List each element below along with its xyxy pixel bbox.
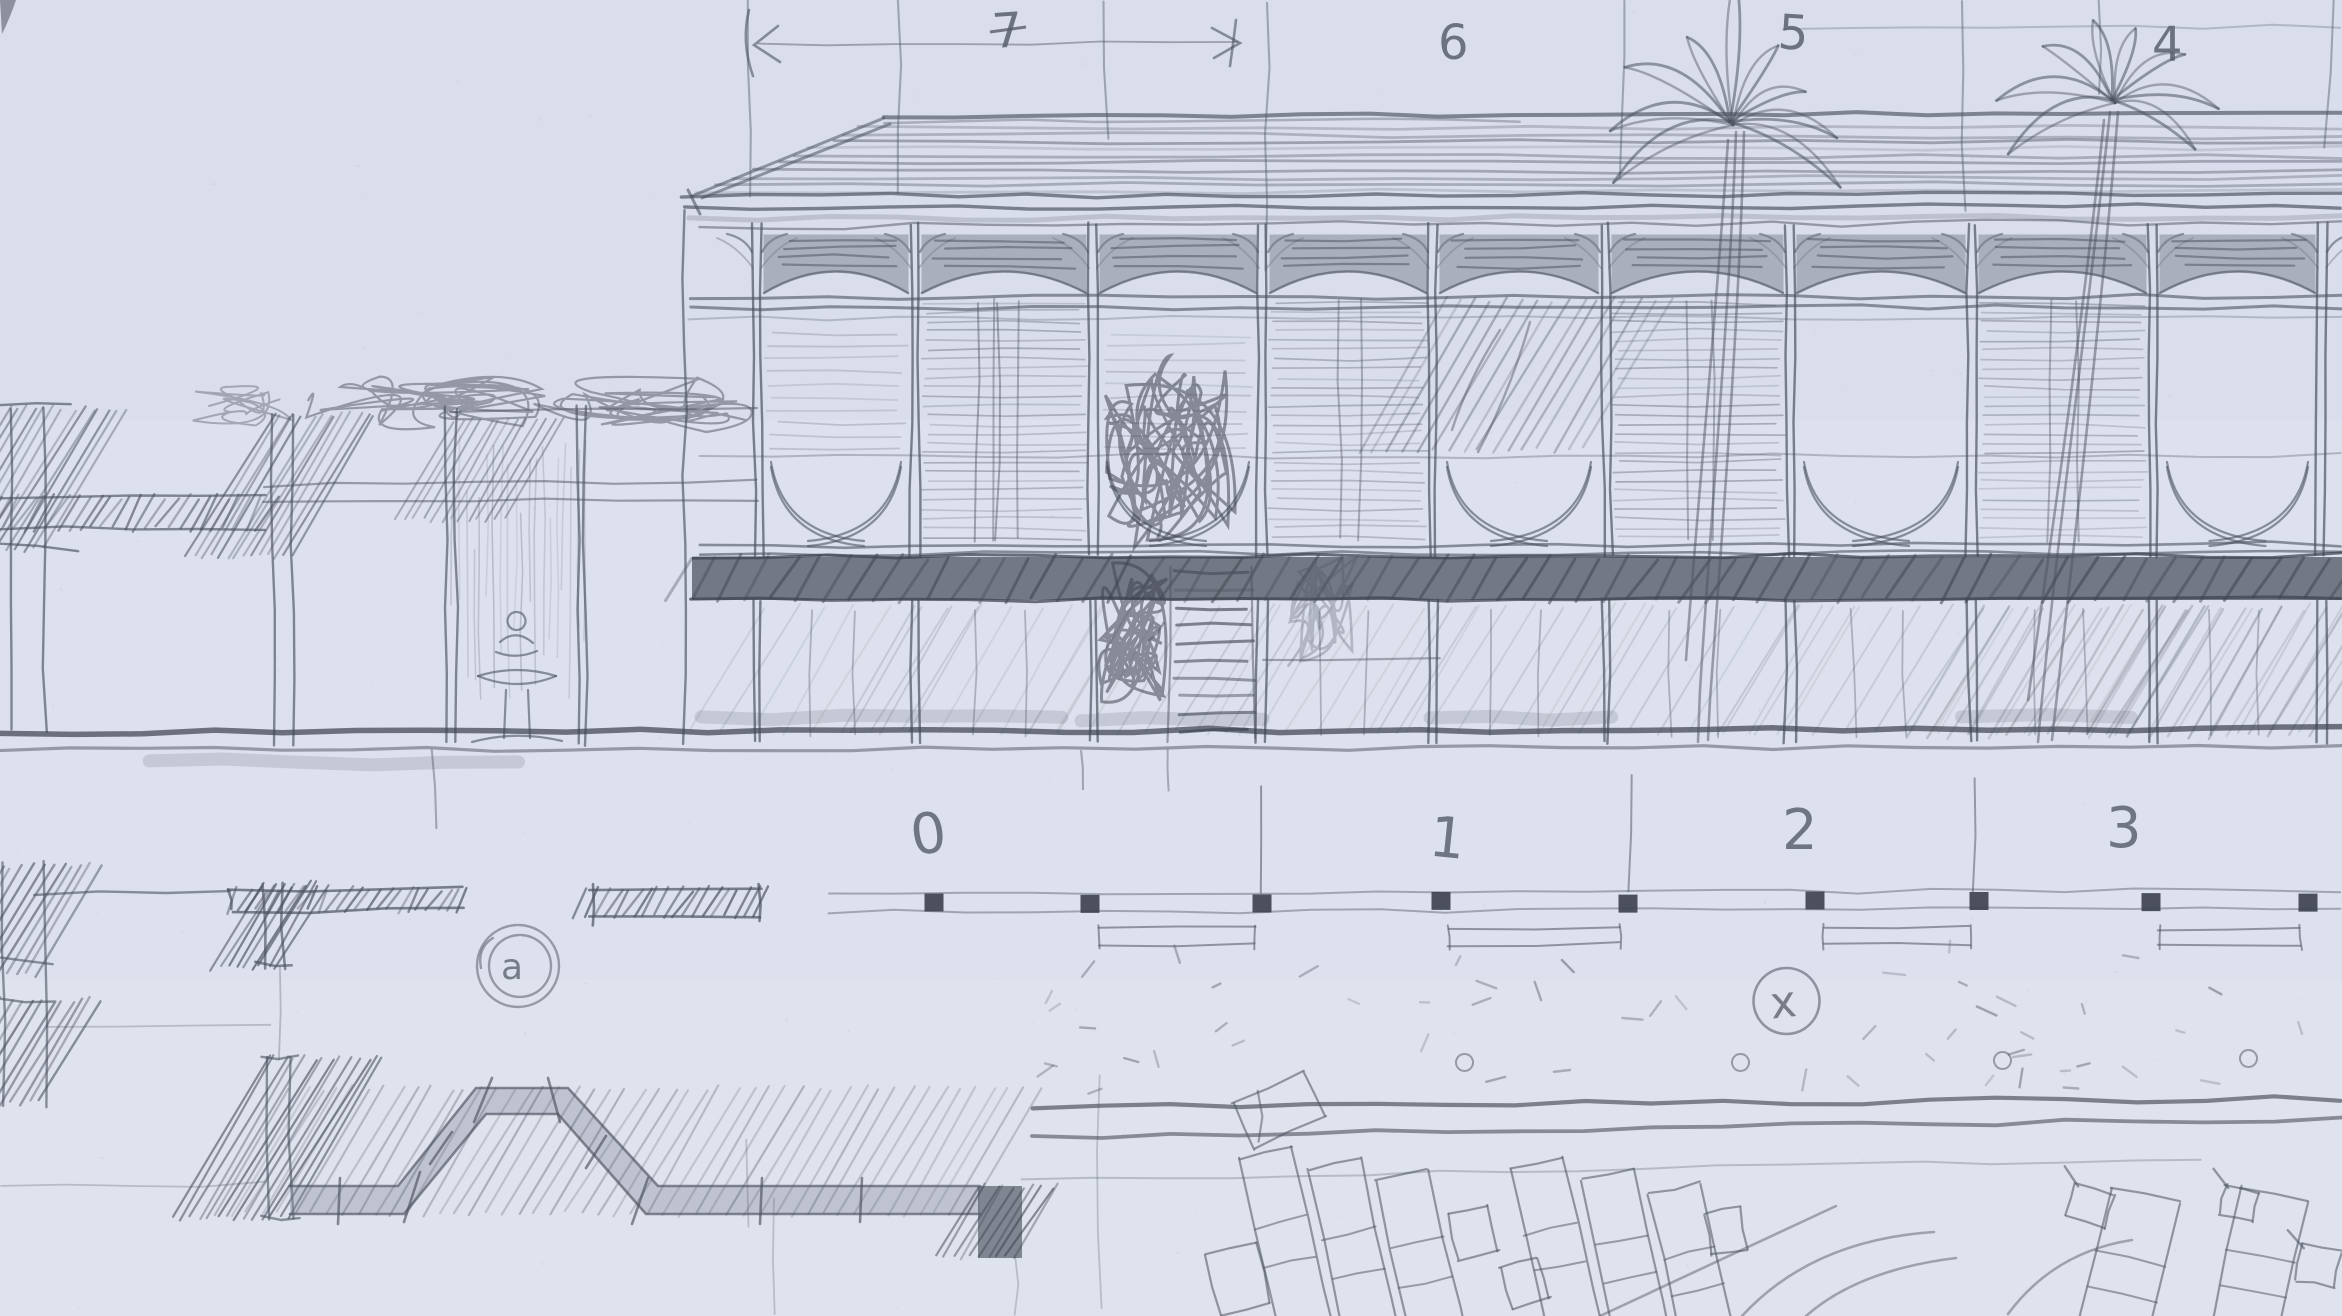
grid-label-5: 5 [1776, 4, 1810, 62]
grid-label-3: 3 [2106, 796, 2142, 861]
planting-marker-label: x [1768, 976, 1799, 1029]
tree-label: a [501, 947, 523, 988]
grid-label-2: 2 [1782, 798, 1818, 863]
architectural-sketch: a x 7 6 5 [0, 0, 2342, 1316]
scanned-sketch-page: a x 7 6 5 [0, 0, 2342, 1316]
grid-label-4: 4 [2152, 17, 2183, 73]
grid-label-6: 6 [1438, 15, 1469, 71]
floor-shadow-band [666, 553, 2342, 603]
grid-label-1: 1 [1426, 805, 1468, 873]
